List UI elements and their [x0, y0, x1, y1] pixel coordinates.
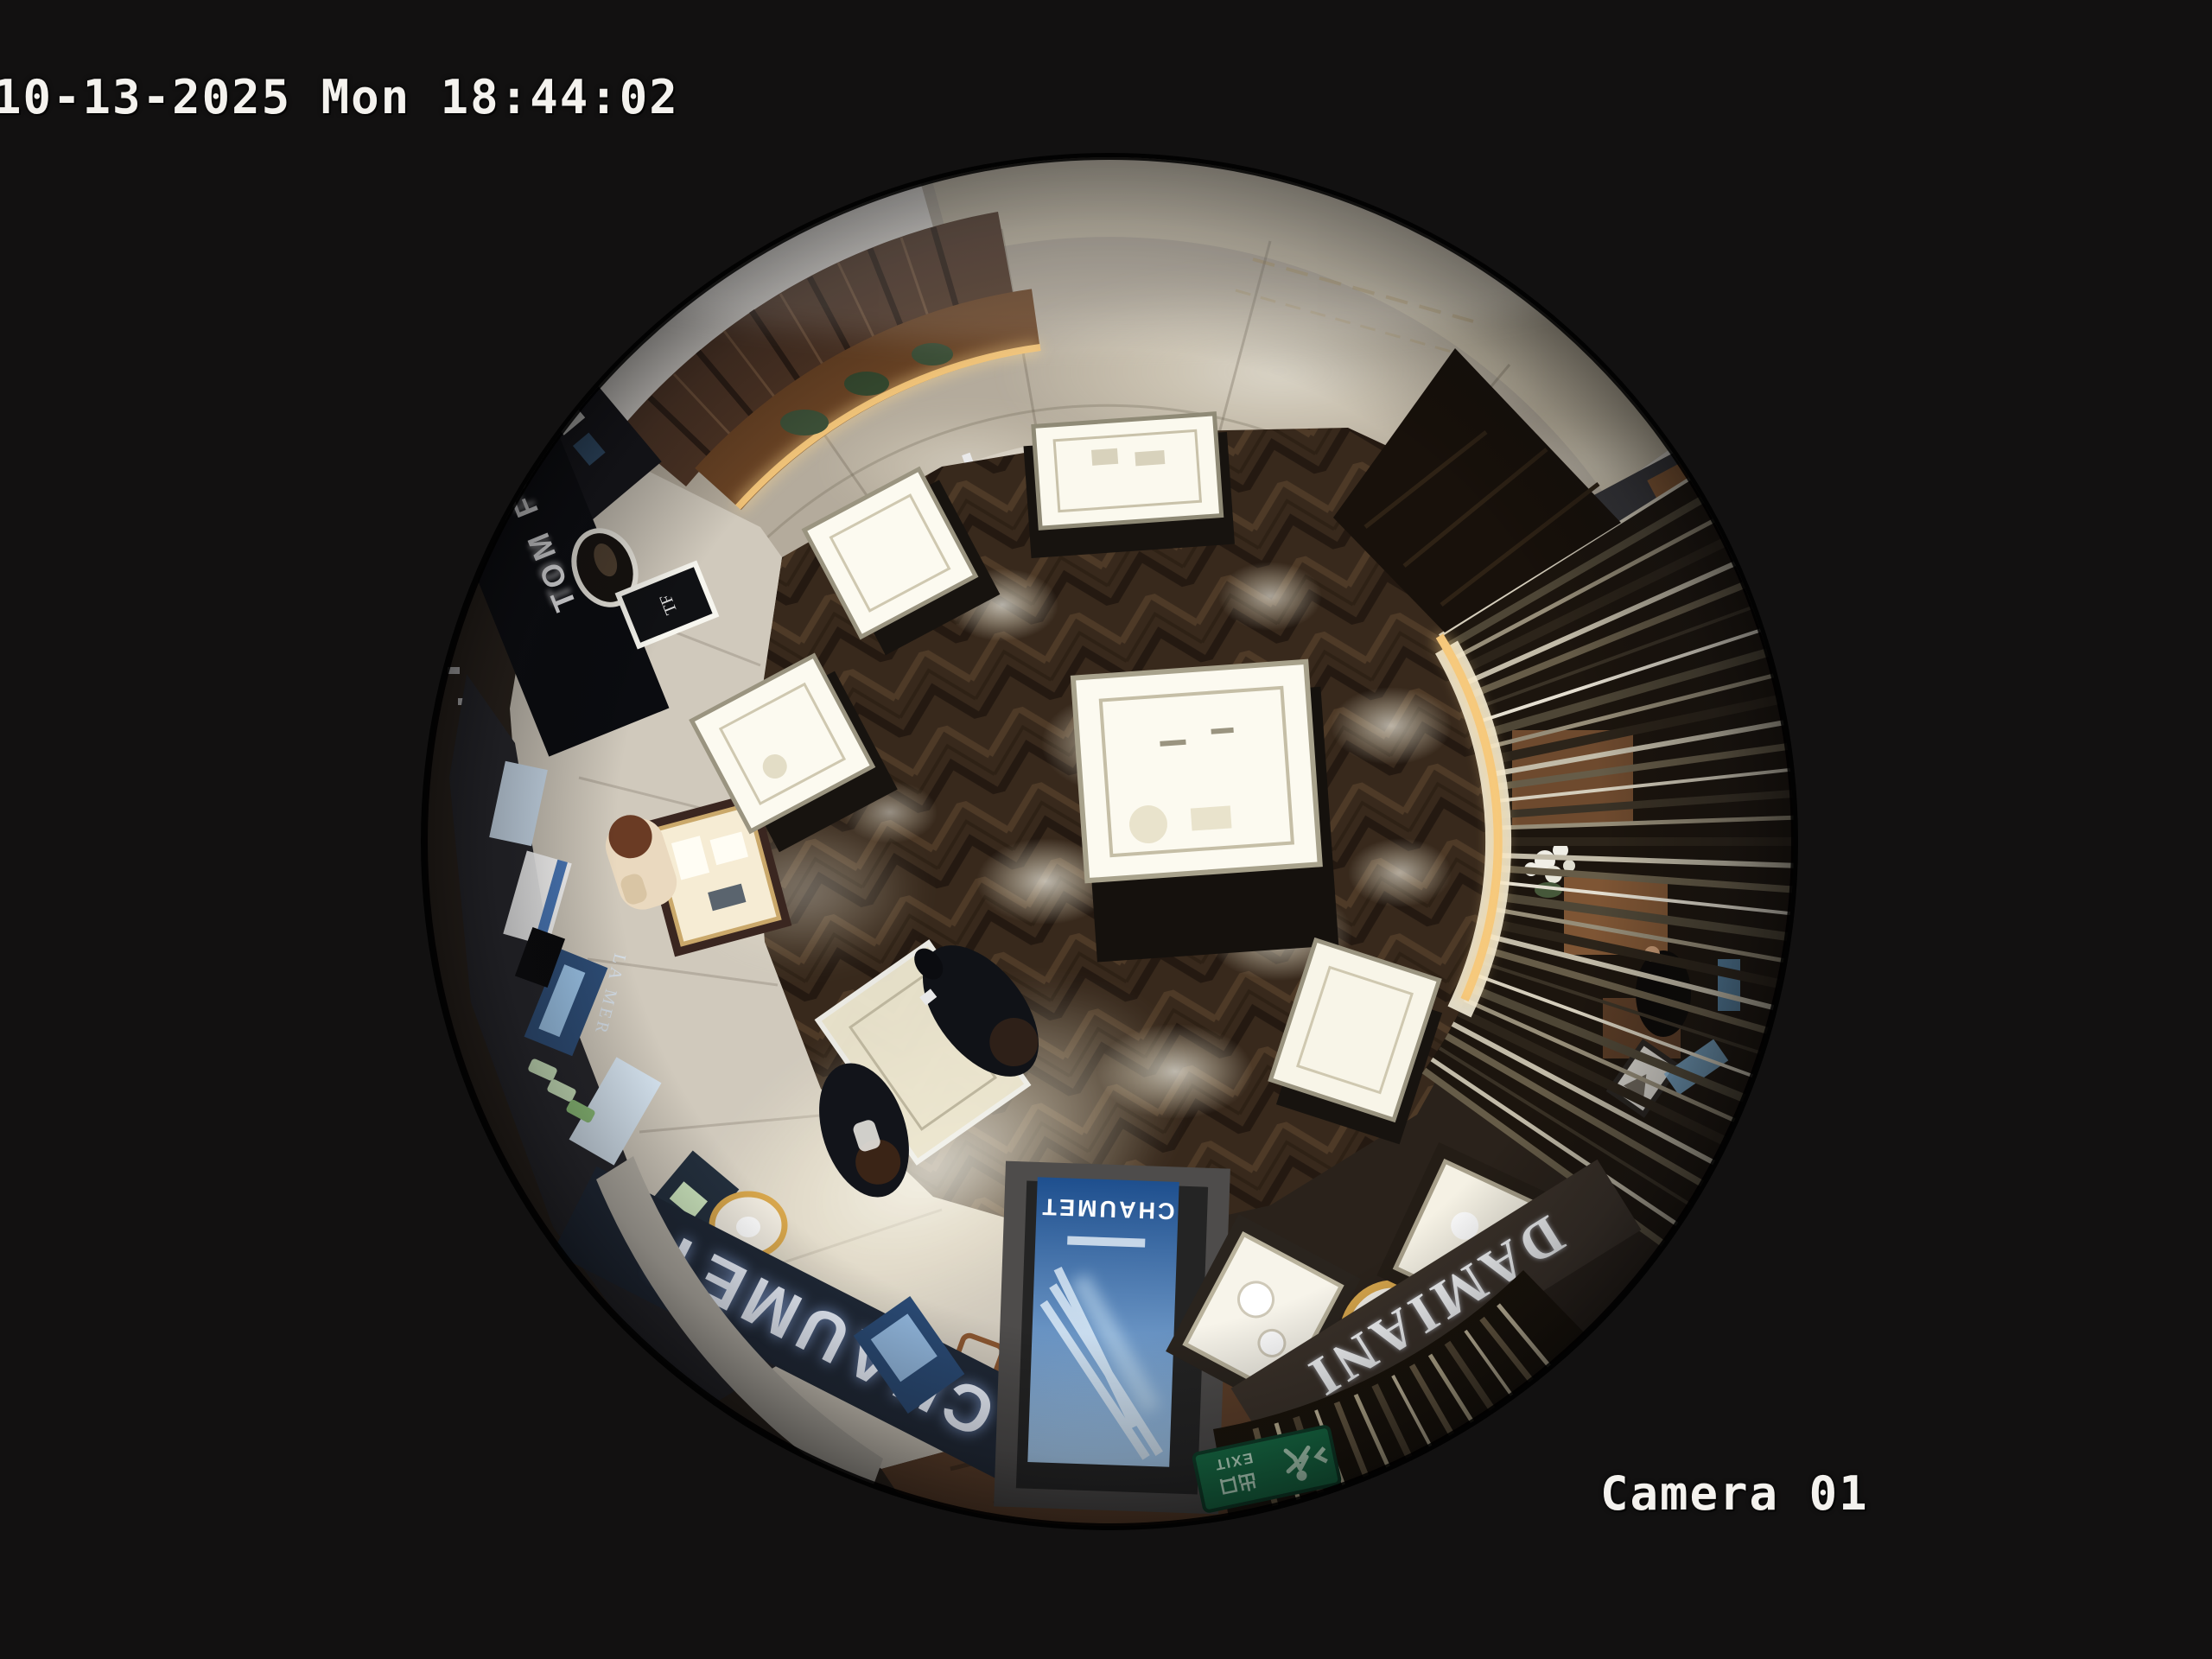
cctv-frame: TOM FORD TOM FORD TF	[0, 0, 2212, 1659]
osd-camera-label: Camera 01	[1600, 1471, 1869, 1517]
fisheye-scene: TOM FORD TOM FORD TF	[0, 0, 2212, 1659]
fisheye-vignette	[425, 157, 1794, 1526]
facade-led-strip	[448, 406, 498, 558]
osd-timestamp: 10-13-2025 Mon 18:44:02	[0, 74, 679, 121]
